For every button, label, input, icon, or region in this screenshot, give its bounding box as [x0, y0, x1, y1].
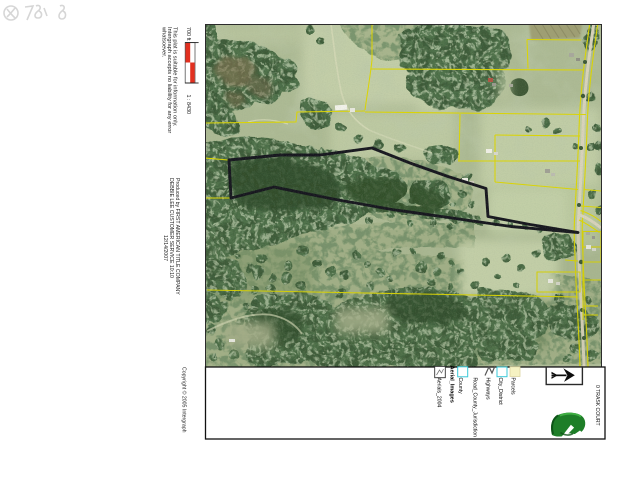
- svg-text:700 ft: 700 ft: [185, 27, 191, 41]
- svg-text:0 TRASK COURT: 0 TRASK COURT: [594, 385, 600, 426]
- svg-text:County: County: [457, 378, 463, 395]
- svg-text:Parcels: Parcels: [510, 378, 516, 395]
- svg-text:Highways: Highways: [485, 378, 491, 401]
- svg-text:Aerial_Images: Aerial_Images: [449, 366, 455, 403]
- svg-text:DEBBIE LEE CUSTOMER SERVICE 10: DEBBIE LEE CUSTOMER SERVICE 10:10: [168, 178, 174, 278]
- svg-text:Aerials_2004: Aerials_2004: [436, 378, 442, 408]
- svg-text:12/14/2007: 12/14/2007: [162, 235, 168, 261]
- svg-text:1 : 8430: 1 : 8430: [185, 95, 191, 114]
- svg-text:City_District: City_District: [497, 378, 503, 406]
- svg-text:whatsoever.: whatsoever.: [161, 26, 167, 58]
- svg-text:Road_County_Jurisdiction: Road_County_Jurisdiction: [472, 378, 478, 438]
- svg-text:Copyright © 2005 Intergraph: Copyright © 2005 Intergraph: [181, 367, 188, 433]
